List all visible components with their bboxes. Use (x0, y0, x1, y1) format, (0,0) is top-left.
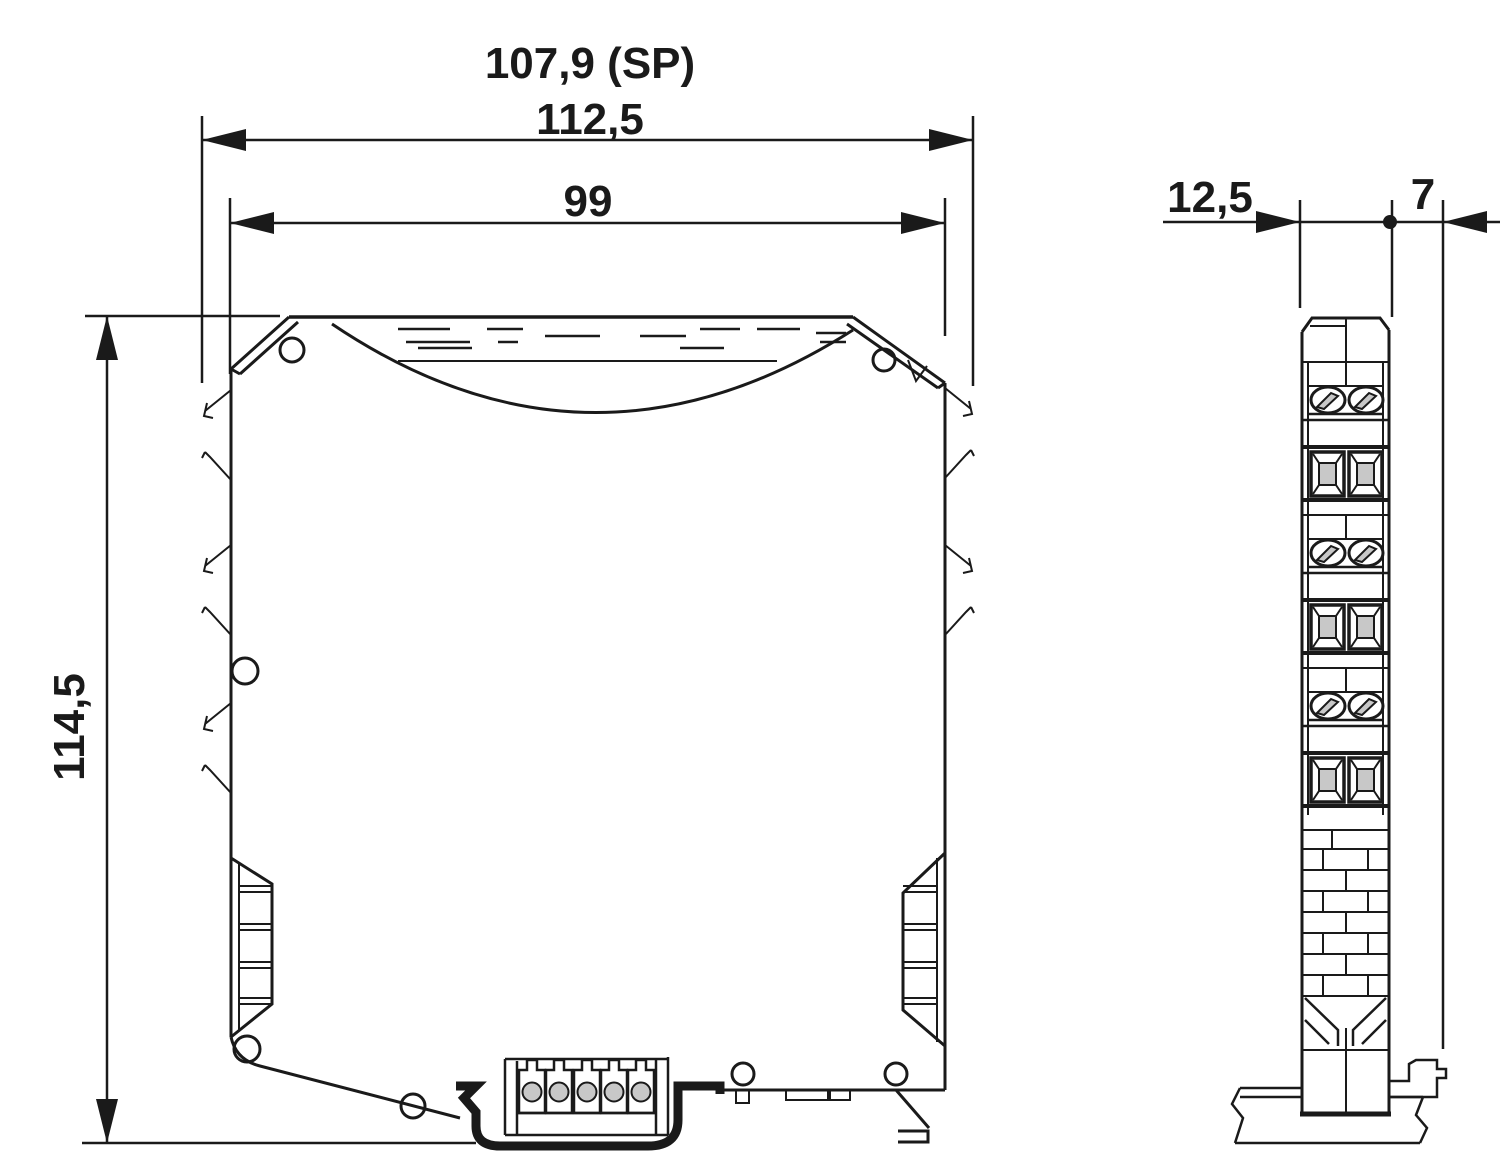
din-rail-foot-right (898, 1131, 928, 1142)
vent-grille-left (231, 858, 272, 1037)
front-view (202, 317, 974, 1146)
connector-pin (574, 1060, 600, 1113)
rail-release-latch (1389, 1060, 1446, 1097)
arrowhead-left (202, 129, 246, 151)
dim-label-overall-width: 112,5 (536, 95, 644, 144)
arrowhead-left (230, 212, 274, 234)
connector-pin (546, 1060, 572, 1113)
dim-label-latch-depth: 7 (1411, 170, 1435, 219)
cover-label-dashes (398, 329, 846, 348)
terminal-screw (1349, 693, 1383, 719)
test-clamp (1349, 452, 1382, 496)
dimension-extension-lines (82, 116, 1443, 1143)
dim-label-module-width: 12,5 (1167, 173, 1253, 222)
terminal-screw (1349, 540, 1383, 566)
dimension-drawing-page: 107,9 (SP) 112,5 99 114,5 12,5 7 (0, 0, 1500, 1172)
dimension-latch-depth: 7 (1390, 170, 1500, 233)
screw-hole-bottom-right-2 (885, 1063, 907, 1085)
connector-pin (628, 1060, 654, 1113)
test-clamp (1349, 758, 1382, 802)
dimension-height: 114,5 (45, 316, 118, 1143)
terminal-screw (1311, 693, 1345, 719)
dim-label-height: 114,5 (45, 673, 94, 781)
bus-connector-plug (505, 1057, 668, 1135)
vent-bricks (1302, 830, 1389, 996)
vent-grille-right (903, 853, 945, 1046)
connector-pin (519, 1060, 545, 1113)
dim-label-housing-width: 99 (564, 177, 613, 226)
terminal-screw (1349, 387, 1383, 413)
dimension-drawing: 107,9 (SP) 112,5 99 114,5 12,5 7 (0, 0, 1500, 1172)
side-view (1232, 318, 1446, 1143)
dimension-housing-width: 99 (230, 177, 945, 234)
screw-hole-top-left (280, 338, 304, 362)
dimension-overall-width: 107,9 (SP) 112,5 (202, 39, 973, 151)
side-latch-hooks-left (202, 390, 231, 793)
arrowhead-bottom (96, 1099, 118, 1143)
side-latch-hooks-right (945, 388, 974, 635)
test-clamp (1349, 605, 1382, 649)
arrowhead-top (96, 316, 118, 360)
test-clamp (1311, 758, 1344, 802)
arrowhead-right (901, 212, 945, 234)
front-housing-outline (231, 317, 945, 1090)
top-cover-arc (332, 324, 927, 413)
terminal-screw (1311, 540, 1345, 566)
screw-hole-top-right (873, 349, 895, 371)
arrowhead-right (929, 129, 973, 151)
arrowhead-right (1256, 211, 1300, 233)
dim-label-shoulder-width: 107,9 (SP) (485, 39, 695, 88)
test-clamp (1311, 452, 1344, 496)
screw-hole-left-edge (232, 658, 258, 684)
connector-pin (601, 1060, 627, 1113)
dimension-module-width: 12,5 (1163, 173, 1397, 233)
arrowhead-left (1443, 211, 1487, 233)
screw-hole-bottom-right-1 (732, 1063, 754, 1085)
terminal-screw (1311, 387, 1345, 413)
test-clamp (1311, 605, 1344, 649)
screw-hole-bottom-left (234, 1036, 260, 1062)
